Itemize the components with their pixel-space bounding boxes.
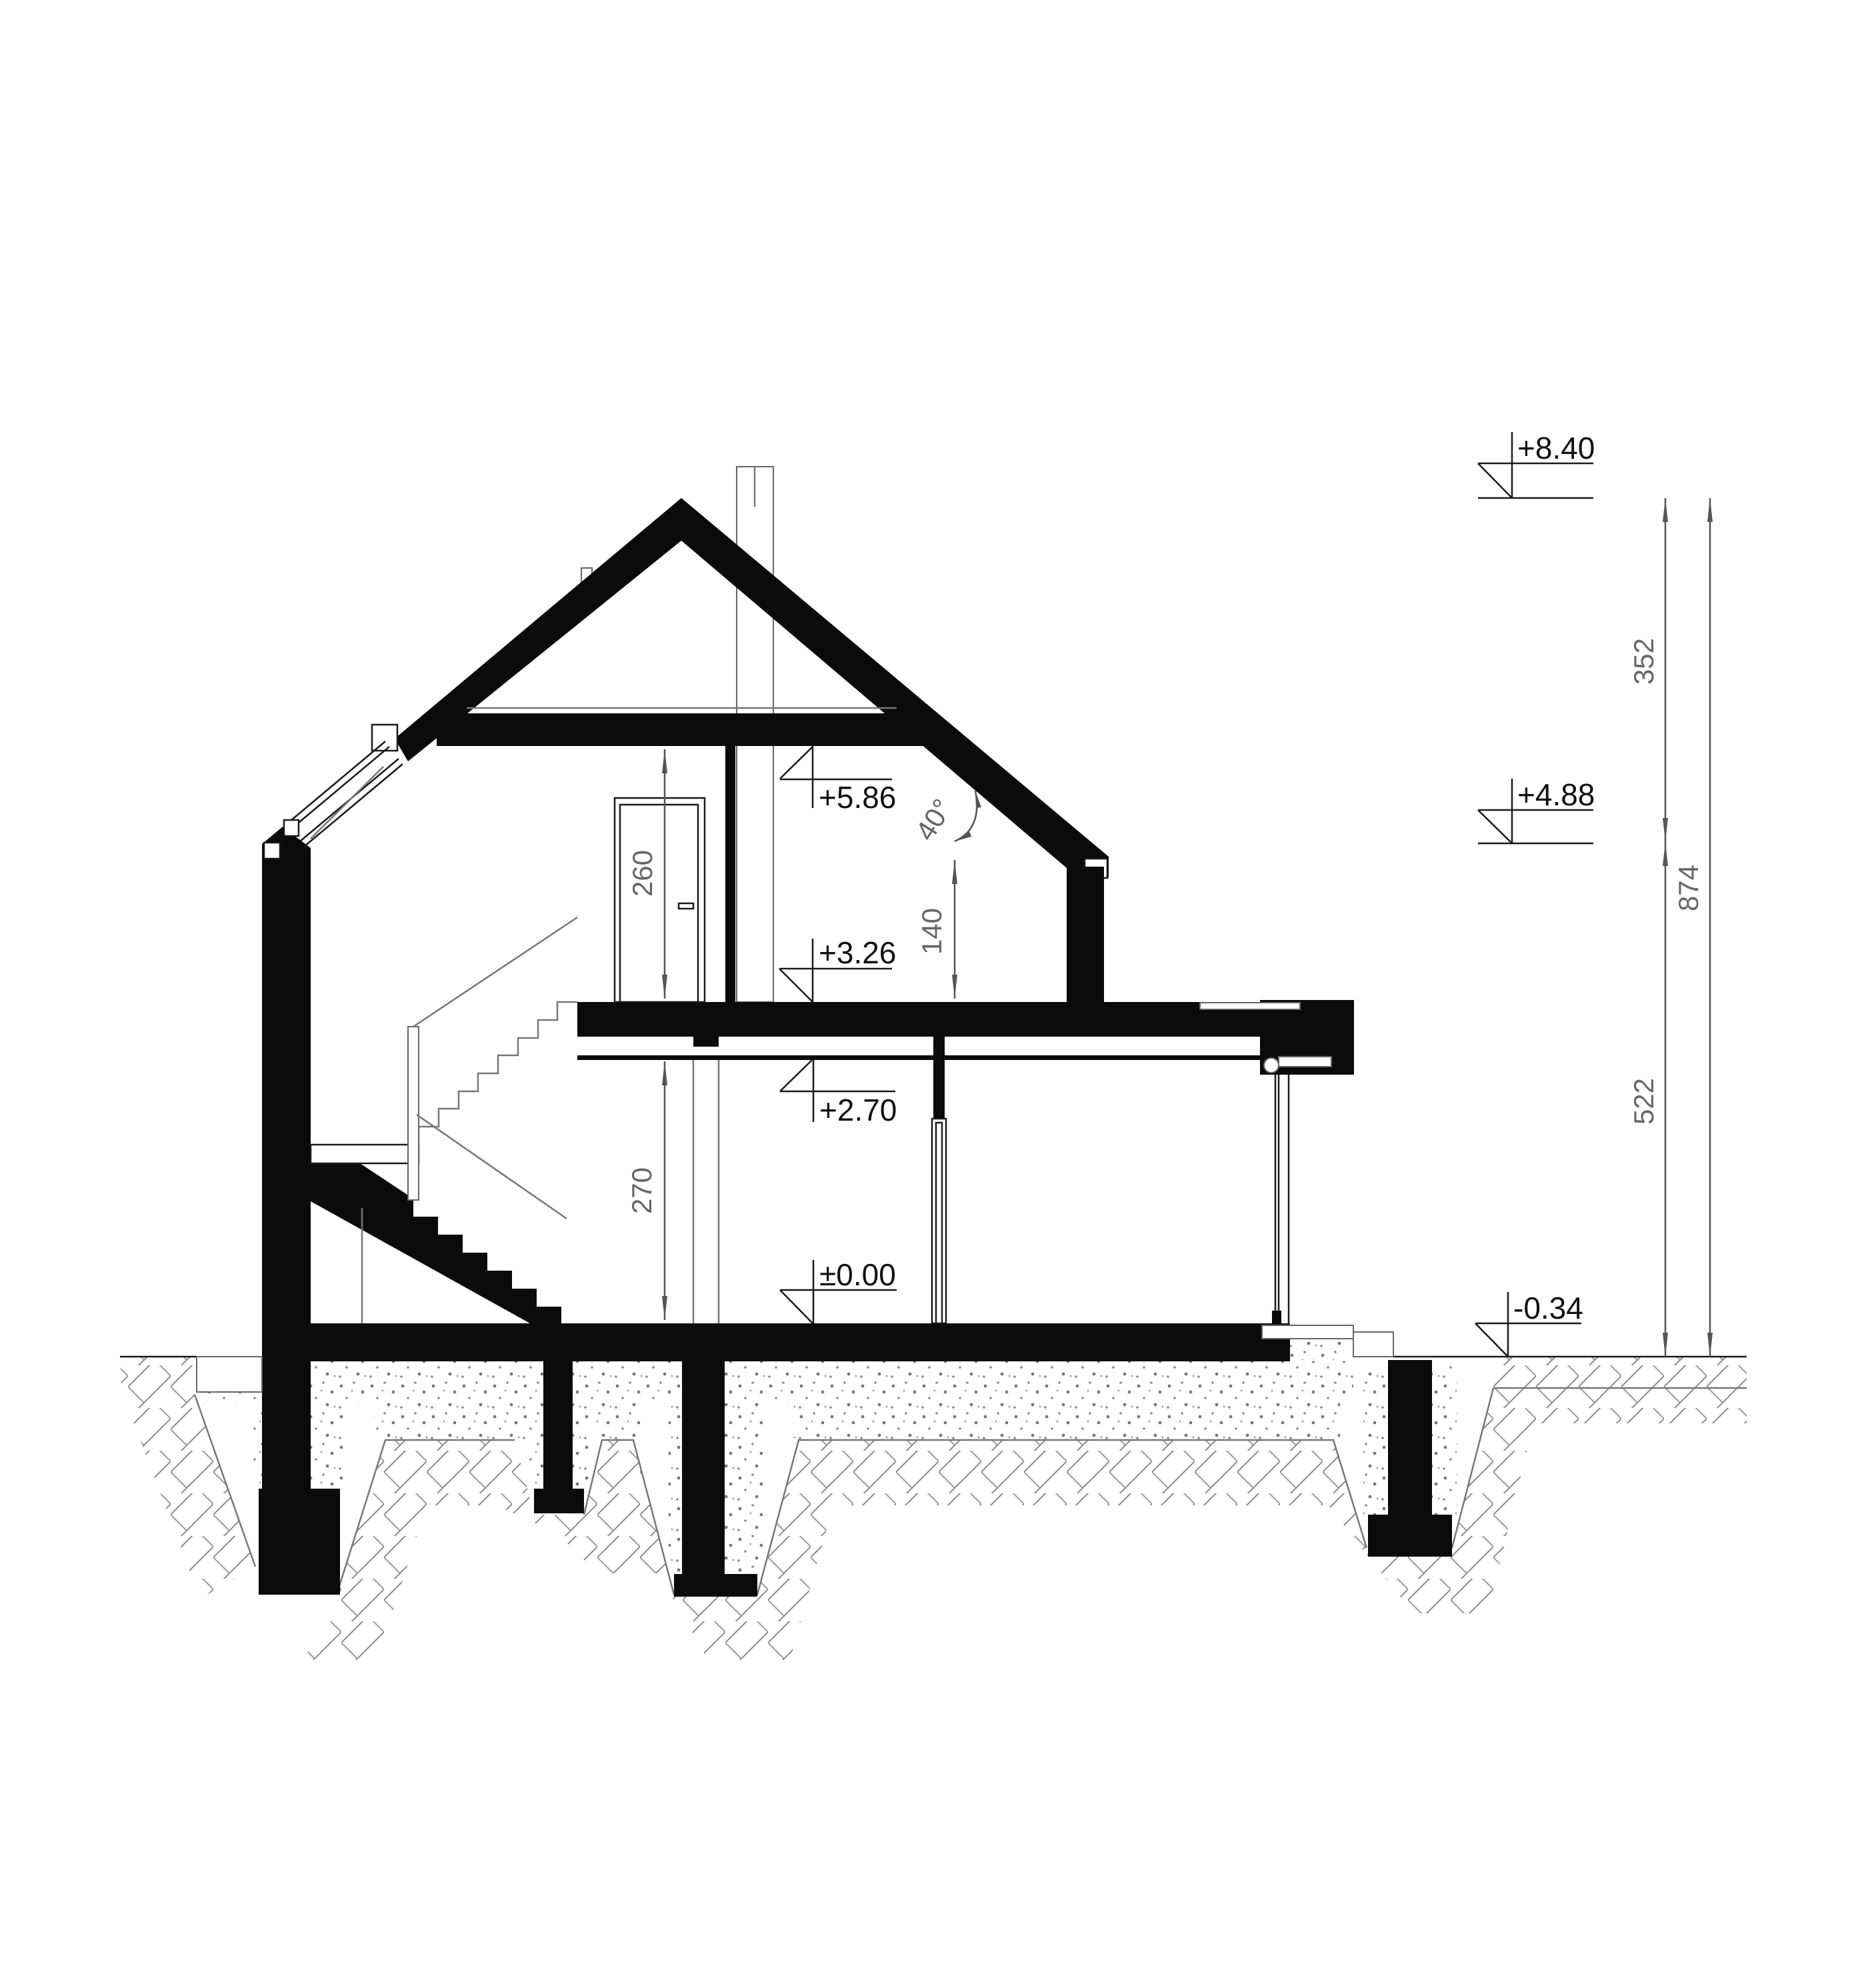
foundation-strip-interior-wall xyxy=(682,1361,725,1574)
bedding-band-4 xyxy=(1033,1403,1340,1440)
dim-label-total-height: 874 xyxy=(1673,865,1704,911)
skylight-bottom-flashing xyxy=(284,820,299,836)
foundation-strip-stair-wall xyxy=(543,1361,573,1489)
foundation-footing-interior xyxy=(674,1574,757,1597)
elevation-marker-ground-floor: ±0.00 xyxy=(780,1257,897,1323)
flat-roof-membrane-slot xyxy=(1200,1003,1300,1009)
dimension-knee-wall-height: 140 xyxy=(916,860,955,999)
elevation-marker-ground-ceiling: +2.70 xyxy=(780,1060,897,1127)
attic-door xyxy=(615,798,705,1002)
left-porch-group xyxy=(197,741,403,1392)
stair-lower-flight-cut xyxy=(311,1163,561,1323)
gutter-pipe-section xyxy=(1264,1058,1279,1073)
downstand-beam-stub xyxy=(693,1037,719,1047)
soil-hatch-right-band xyxy=(1493,1357,1747,1388)
bedding-under-slab xyxy=(200,1361,1353,1403)
level-label-eaves: +4.88 xyxy=(1517,777,1595,812)
dim-label-attic-room: 260 xyxy=(627,850,658,897)
level-label-attic-floor: +3.26 xyxy=(819,935,896,970)
stair-stringer-lower xyxy=(417,1115,567,1219)
stair-railing-post xyxy=(408,1027,419,1200)
dim-label-ground-room: 270 xyxy=(626,1167,657,1214)
bedding-band-2 xyxy=(593,1403,640,1440)
foundation-strip-left-wall xyxy=(262,1361,311,1489)
elevation-marker-ridge: +8.40 xyxy=(1478,431,1595,498)
elevation-marker-attic-ceiling: +5.86 xyxy=(780,746,896,815)
dim-label-knee-wall: 140 xyxy=(916,908,947,955)
architectural-section-sheet: +8.40 +4.88 -0.34 +5.86 +3.26 +2.70 ±0.0… xyxy=(0,0,1874,1988)
roller-box-left-eave xyxy=(372,725,397,751)
terrace-sill xyxy=(1262,1325,1353,1339)
entry-apron xyxy=(197,1357,262,1392)
dimension-roof-pitch: 40° xyxy=(909,791,977,846)
right-glazing xyxy=(1272,1075,1289,1325)
dimension-ground-room-height: 270 xyxy=(626,1061,665,1320)
elevation-marker-eaves-right: +4.88 xyxy=(1478,777,1595,843)
stair-landing xyxy=(311,1145,419,1163)
foundation-footing-stair xyxy=(534,1489,584,1513)
dimension-roof-zone: 352 xyxy=(1628,498,1665,842)
foundation-footing-terrace xyxy=(1368,1515,1452,1557)
foundation-footing-left xyxy=(259,1489,340,1595)
section-drawing: +8.40 +4.88 -0.34 +5.86 +3.26 +2.70 ±0.0… xyxy=(0,0,1874,1988)
dim-label-wall-zone: 522 xyxy=(1628,1078,1659,1125)
ground-interior-door xyxy=(932,1119,946,1323)
stair-upper-flight-steps xyxy=(419,1002,577,1145)
elevation-marker-attic-floor: +3.26 xyxy=(779,935,896,1002)
dimension-wall-zone: 522 xyxy=(1628,842,1665,1357)
level-label-ridge: +8.40 xyxy=(1517,431,1595,465)
foundation-strip-terrace xyxy=(1388,1360,1432,1515)
roller-box-left-wall xyxy=(264,843,280,859)
dim-label-roof-pitch: 40° xyxy=(909,793,959,846)
collar-beam-ceiling xyxy=(437,713,927,746)
suspended-ceiling-line xyxy=(577,1055,1275,1060)
left-wall xyxy=(262,827,311,1361)
bedding-band-3 xyxy=(793,1403,1033,1440)
attic-partition-wall xyxy=(725,746,735,1002)
dimension-total-height: 874 xyxy=(1673,498,1710,1357)
knee-wall-right xyxy=(1067,867,1104,1003)
door-handle xyxy=(679,903,693,909)
bedding-band-1 xyxy=(373,1403,527,1440)
level-label-attic-ceiling: +5.86 xyxy=(819,780,896,815)
slabs-group xyxy=(262,1000,1354,1361)
level-label-ground-floor: ±0.00 xyxy=(819,1257,896,1292)
stairs-group xyxy=(311,917,577,1323)
skylight-glazing xyxy=(284,741,403,847)
elevation-marker-terrain: -0.34 xyxy=(1475,1291,1583,1357)
ground-floor-slab xyxy=(262,1323,1290,1361)
dim-label-roof-zone: 352 xyxy=(1628,638,1659,685)
fascia-soffit-slot xyxy=(1279,1057,1331,1067)
stair-handrail-upper xyxy=(413,917,577,1027)
terrace-step xyxy=(1353,1332,1393,1357)
right-side-group xyxy=(1067,867,1393,1357)
level-label-terrain: -0.34 xyxy=(1513,1291,1583,1325)
glazing-bottom-frame xyxy=(1272,1311,1281,1325)
ground-door-lintel-wall xyxy=(933,1037,945,1119)
level-label-ground-ceiling: +2.70 xyxy=(819,1093,897,1127)
